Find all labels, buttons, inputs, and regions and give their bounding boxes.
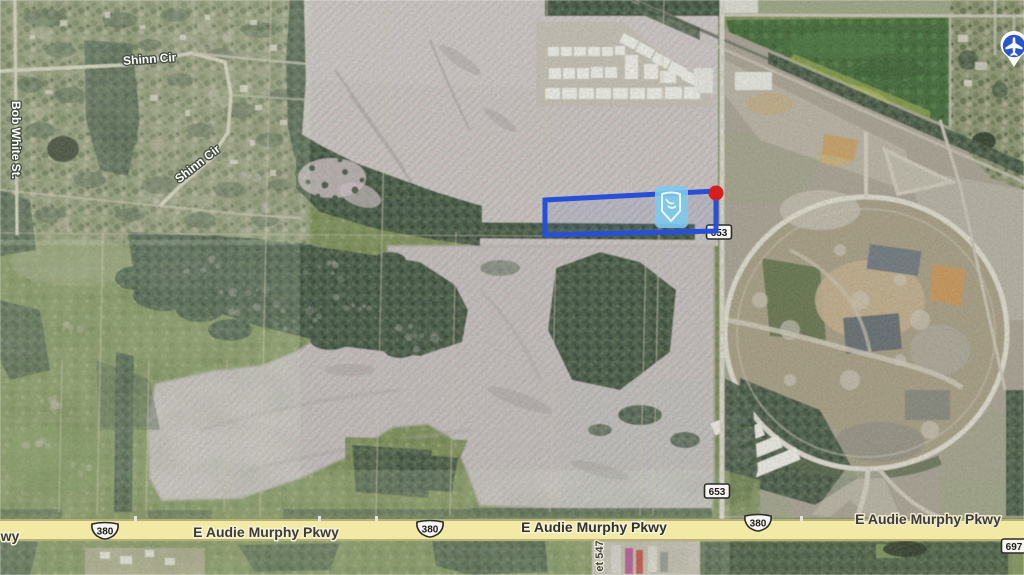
svg-text:wy: wy [0,528,20,544]
svg-text:E Audie Murphy Pkwy: E Audie Murphy Pkwy [855,511,1001,527]
svg-text:380: 380 [97,527,114,538]
svg-text:697: 697 [1006,542,1023,553]
svg-text:Bob White St.: Bob White St. [9,101,23,179]
svg-text:380: 380 [422,525,439,536]
svg-text:E Audie Murphy Pkwy: E Audie Murphy Pkwy [521,519,667,535]
svg-text:653: 653 [709,487,726,498]
svg-text:et 547: et 547 [594,540,606,571]
svg-text:380: 380 [750,519,767,530]
svg-text:E Audie Murphy Pkwy: E Audie Murphy Pkwy [193,524,339,540]
